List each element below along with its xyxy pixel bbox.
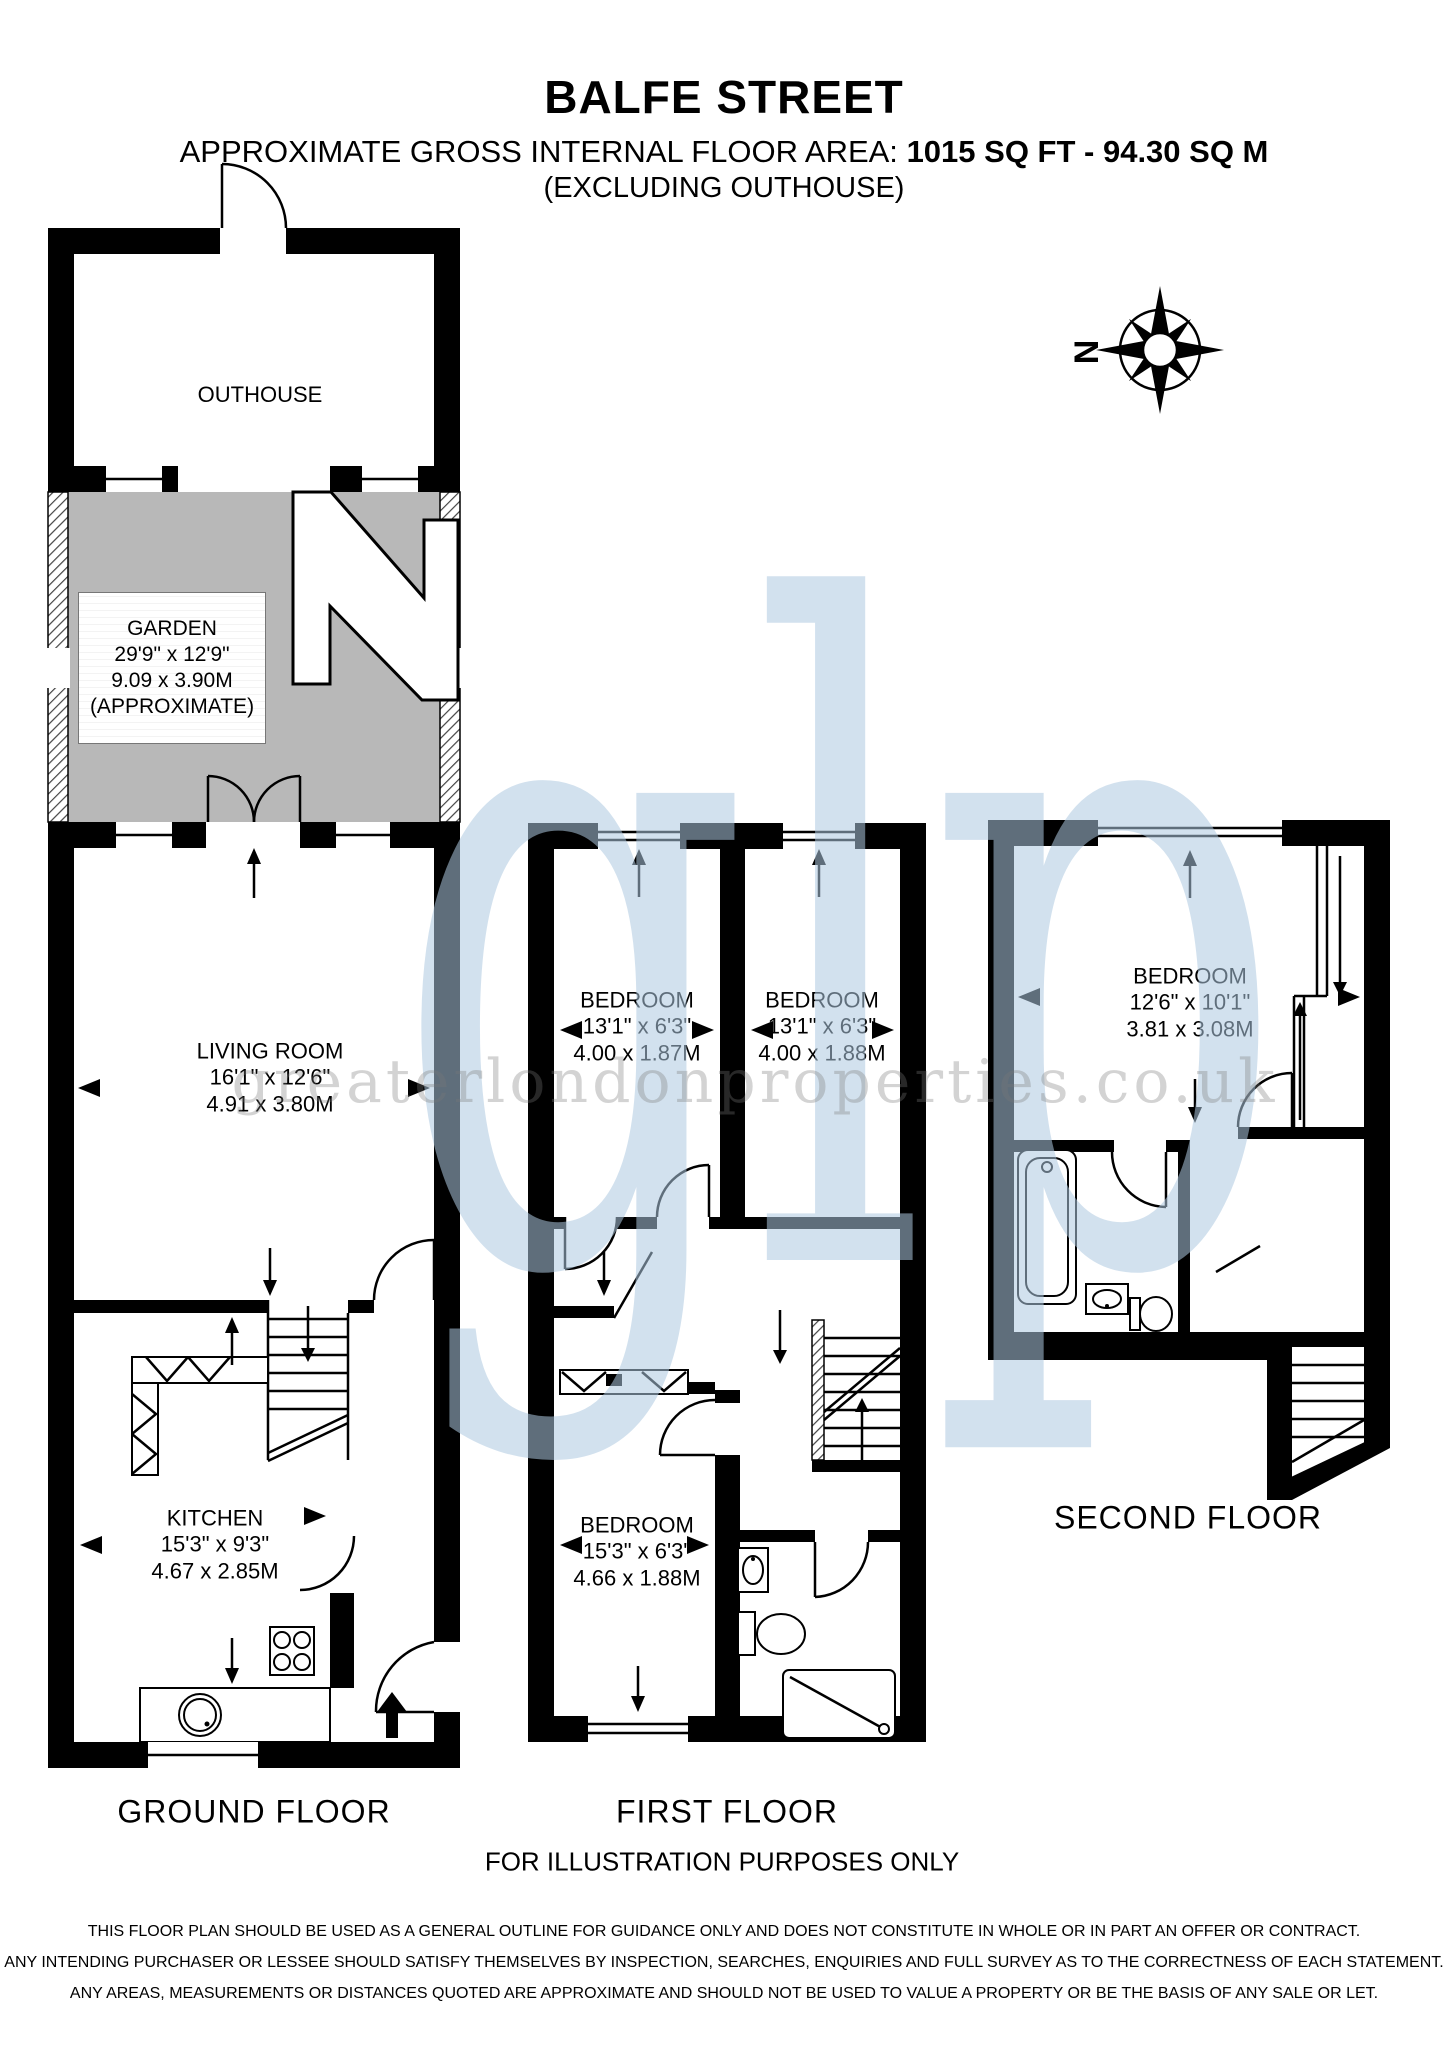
- first-floor-plan: [528, 823, 926, 1742]
- area-value: 1015 SQ FT - 94.30 SQ M: [907, 134, 1269, 169]
- window: [588, 1716, 688, 1742]
- area-summary: APPROXIMATE GROSS INTERNAL FLOOR AREA: 1…: [0, 134, 1448, 170]
- first-floor-label: FIRST FLOOR: [616, 1794, 838, 1831]
- outhouse-room: [48, 164, 460, 492]
- window: [598, 823, 680, 849]
- second-floor-plan: [988, 820, 1390, 1500]
- compass-north-label: N: [1066, 340, 1105, 365]
- window: [106, 466, 162, 492]
- room-size-note: (APPROXIMATE): [79, 694, 265, 720]
- shower-fixture: [783, 1670, 895, 1738]
- compass-rose-icon: [1096, 286, 1224, 414]
- window: [783, 823, 855, 849]
- area-prefix: APPROXIMATE GROSS INTERNAL FLOOR AREA:: [180, 134, 898, 169]
- window: [148, 1742, 258, 1768]
- page-title: BALFE STREET: [0, 70, 1448, 124]
- disclaimer-line: ANY AREAS, MEASUREMENTS OR DISTANCES QUO…: [0, 1978, 1448, 2009]
- ground-floor-label: GROUND FLOOR: [117, 1794, 390, 1831]
- bedroom-second-label: BEDROOM 12'6" x 10'1" 3.81 x 3.08M: [1126, 963, 1253, 1042]
- staircase: [1267, 1332, 1390, 1500]
- window: [116, 822, 172, 848]
- bedroom-front-left-label: BEDROOM 13'1" x 6'3" 4.00 x 1.87M: [573, 987, 700, 1066]
- disclaimer-line: ANY INTENDING PURCHASER OR LESSEE SHOULD…: [0, 1947, 1448, 1978]
- floorplan-page: BALFE STREET APPROXIMATE GROSS INTERNAL …: [0, 0, 1448, 2048]
- toilet-fixture: [1130, 1297, 1172, 1331]
- sink-fixture: [140, 1688, 330, 1742]
- bedroom-front-right-label: BEDROOM 13'1" x 6'3" 4.00 x 1.88M: [758, 987, 885, 1066]
- disclaimer-line: THIS FLOOR PLAN SHOULD BE USED AS A GENE…: [0, 1916, 1448, 1947]
- room-size-imperial: 29'9" x 12'9": [79, 642, 265, 668]
- outhouse-label: OUTHOUSE: [198, 382, 323, 408]
- stove-fixture: [270, 1627, 314, 1675]
- sink-fixture: [738, 1548, 768, 1592]
- window: [362, 466, 418, 492]
- room-name: GARDEN: [79, 616, 265, 642]
- exclusion-note: (EXCLUDING OUTHOUSE): [0, 172, 1448, 205]
- window: [336, 822, 390, 848]
- garden-label: GARDEN 29'9" x 12'9" 9.09 x 3.90M (APPRO…: [78, 592, 266, 744]
- window: [1098, 820, 1282, 846]
- illustration-note: FOR ILLUSTRATION PURPOSES ONLY: [485, 1847, 959, 1878]
- second-floor-label: SECOND FLOOR: [1054, 1500, 1322, 1537]
- bedroom-rear-label: BEDROOM 15'3" x 6'3" 4.66 x 1.88M: [573, 1512, 700, 1591]
- kitchen-label: KITCHEN 15'3" x 9'3" 4.67 x 2.85M: [151, 1505, 278, 1584]
- room-size-metric: 9.09 x 3.90M: [79, 668, 265, 694]
- bathtub-fixture: [1018, 1150, 1076, 1304]
- disclaimer: THIS FLOOR PLAN SHOULD BE USED AS A GENE…: [0, 1916, 1448, 2010]
- toilet-fixture: [738, 1612, 805, 1655]
- sink-fixture: [1086, 1284, 1128, 1314]
- living-room-label: LIVING ROOM 16'1" x 12'6" 4.91 x 3.80M: [197, 1038, 344, 1117]
